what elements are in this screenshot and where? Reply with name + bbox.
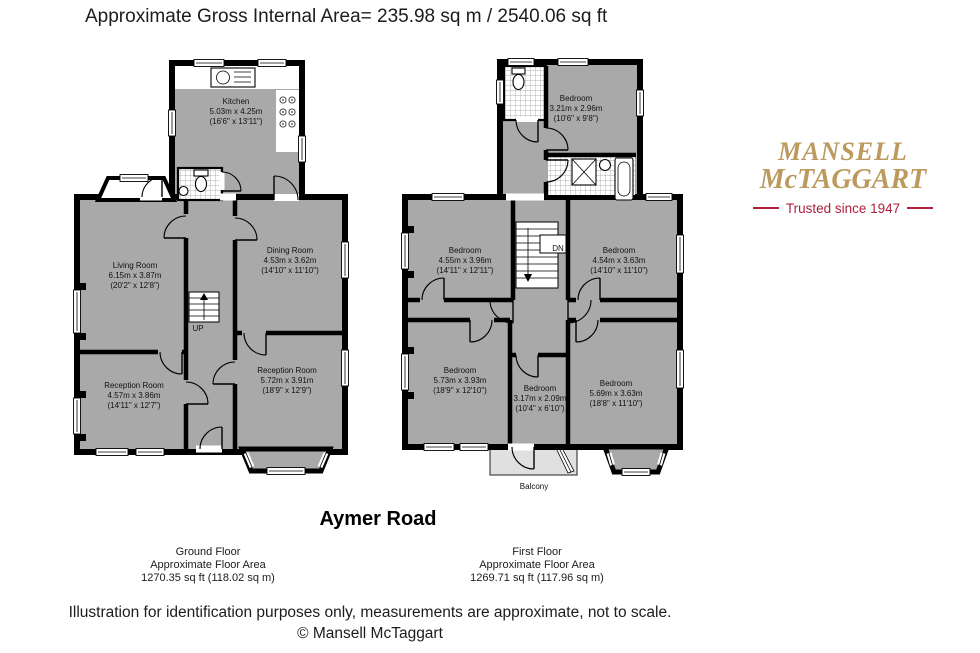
room-dims-imperial: (14'11" x 12'7") — [84, 401, 184, 411]
property-title: Aymer Road — [278, 508, 478, 531]
room-name: Bedroom — [526, 94, 626, 104]
room-label-bedroom-mid-right: Bedroom 4.54m x 3.63m (14'10" x 11'10") — [569, 246, 669, 276]
basin-icon-first — [600, 160, 611, 171]
room-label-reception-2: Reception Room 5.72m x 3.91m (18'9" x 12… — [237, 366, 337, 396]
sink-icon — [211, 68, 255, 87]
room-dims-imperial: (18'8" x 11'10") — [566, 399, 666, 409]
ground-stairs — [189, 292, 219, 322]
room-label-kitchen: Kitchen 5.03m x 4.25m (16'6" x 13'11") — [186, 97, 286, 127]
floor-name: Ground Floor — [108, 546, 308, 559]
tagline-rule-right — [907, 207, 933, 209]
room-dims-imperial: (10'6" x 9'8") — [526, 114, 626, 124]
room-name: Reception Room — [84, 381, 184, 391]
room-label-dining-room: Dining Room 4.53m x 3.62m (14'10" x 11'1… — [240, 246, 340, 276]
room-dims-metric: 5.69m x 3.63m — [566, 389, 666, 399]
floor-area-value: 1270.35 sq ft (118.02 sq m) — [108, 572, 308, 585]
logo-line2: McTAGGART — [744, 165, 942, 194]
agency-logo: MANSELL McTAGGART Trusted since 1947 — [744, 138, 942, 216]
toilet-icon — [194, 170, 208, 176]
room-label-bedroom-top: Bedroom 3.21m x 2.96m (10'6" x 9'8") — [526, 94, 626, 124]
balcony-label: Balcony — [498, 482, 570, 492]
room-name: Dining Room — [240, 246, 340, 256]
floor-name: First Floor — [437, 546, 637, 559]
copyright-text: © Mansell McTaggart — [0, 625, 740, 643]
room-dims-metric: 6.15m x 3.87m — [85, 271, 185, 281]
logo-tagline: Trusted since 1947 — [744, 201, 942, 216]
disclaimer-text: Illustration for identification purposes… — [0, 604, 740, 622]
room-name: Bedroom — [569, 246, 669, 256]
floor-area-label: Approximate Floor Area — [437, 559, 637, 572]
stairs-up-label: UP — [180, 324, 216, 334]
room-dims-metric: 3.21m x 2.96m — [526, 104, 626, 114]
room-label-bedroom-bottom-right: Bedroom 5.69m x 3.63m (18'8" x 11'10") — [566, 379, 666, 409]
room-dims-metric: 5.72m x 3.91m — [237, 376, 337, 386]
stairs-dn-label: DN — [544, 244, 572, 254]
room-name: Reception Room — [237, 366, 337, 376]
room-label-bedroom-mid-left: Bedroom 4.55m x 3.96m (14'11" x 12'11") — [415, 246, 515, 276]
room-dims-metric: 5.03m x 4.25m — [186, 107, 286, 117]
basin-icon — [179, 187, 188, 196]
room-dims-imperial: (18'9" x 12'9") — [237, 386, 337, 396]
room-dims-imperial: (20'2" x 12'8") — [85, 281, 185, 291]
first-stairs — [516, 222, 566, 288]
first-floor-caption: First Floor Approximate Floor Area 1269.… — [437, 546, 637, 585]
room-name: Bedroom — [415, 246, 515, 256]
room-name: Kitchen — [186, 97, 286, 107]
toilet-icon-first — [512, 68, 525, 74]
room-name: Living Room — [85, 261, 185, 271]
logo-line1: MANSELL — [744, 138, 942, 165]
room-dims-imperial: (14'11" x 12'11") — [415, 266, 515, 276]
room-name: Bedroom — [410, 366, 510, 376]
tagline-rule-left — [753, 207, 779, 209]
room-label-living-room: Living Room 6.15m x 3.87m (20'2" x 12'8"… — [85, 261, 185, 291]
gross-area-heading: Approximate Gross Internal Area= 235.98 … — [85, 6, 607, 28]
room-dims-metric: 4.57m x 3.86m — [84, 391, 184, 401]
room-dims-metric: 4.53m x 3.62m — [240, 256, 340, 266]
room-name: Bedroom — [566, 379, 666, 389]
room-label-reception-1: Reception Room 4.57m x 3.86m (14'11" x 1… — [84, 381, 184, 411]
tagline-text: Trusted since 1947 — [786, 201, 900, 216]
room-dims-metric: 4.55m x 3.96m — [415, 256, 515, 266]
floor-area-label: Approximate Floor Area — [108, 559, 308, 572]
room-dims-imperial: (14'10" x 11'10") — [240, 266, 340, 276]
room-dims-imperial: (14'10" x 11'10") — [569, 266, 669, 276]
floor-area-value: 1269.71 sq ft (117.96 sq m) — [437, 572, 637, 585]
room-dims-metric: 4.54m x 3.63m — [569, 256, 669, 266]
floorplan-page: Approximate Gross Internal Area= 235.98 … — [0, 0, 980, 653]
bathroom — [548, 157, 635, 200]
room-dims-imperial: (16'6" x 13'11") — [186, 117, 286, 127]
ground-floor-caption: Ground Floor Approximate Floor Area 1270… — [108, 546, 308, 585]
